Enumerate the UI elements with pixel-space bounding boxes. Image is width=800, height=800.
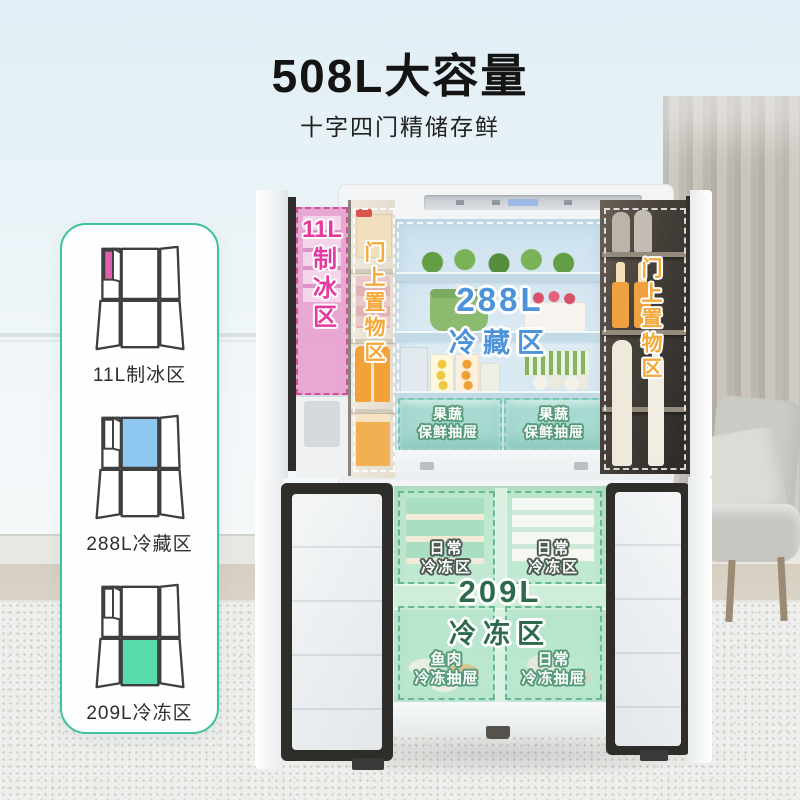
left-door-bin-label-text: 门上置物区 xyxy=(358,228,388,378)
freezer-daily-right-label: 日常 冷冻区 xyxy=(505,539,602,577)
cauliflower xyxy=(530,374,588,391)
freezer-daily-left-label: 日常 冷冻区 xyxy=(398,539,495,577)
freezer-zone-size: 209L xyxy=(394,574,606,610)
legend-item-ice: 11L制冰区 xyxy=(62,225,217,394)
crisper-left-label: 果蔬 保鲜抽屉 xyxy=(398,405,498,441)
left-door-bin-label: 门上置物区 xyxy=(351,228,395,378)
left-door-edge xyxy=(256,190,288,478)
crisper-right-label: 果蔬 保鲜抽屉 xyxy=(504,405,604,441)
freezer-zone-label: 209L 冷冻区 xyxy=(394,574,606,651)
legend-label-freezer: 209L冷冻区 xyxy=(86,698,192,725)
freezer-drawer-left-line1: 鱼肉 xyxy=(398,650,495,669)
crisper-left-label-line2: 保鲜抽屉 xyxy=(398,423,498,441)
ice-zone-label-name: 制冰区 xyxy=(305,246,340,333)
capacity-legend-card: 11L制冰区 288L冷藏区 xyxy=(60,223,219,734)
armchair-seat xyxy=(698,504,800,562)
product-detail-image: 508L大容量 十字四门精储存鲜 11L制冰区 xyxy=(0,0,800,800)
glass-shelf xyxy=(396,272,604,281)
freezer-daily-left-line1: 日常 xyxy=(398,539,495,558)
freezer-drawer-right-label: 日常 冷冻抽屉 xyxy=(505,650,602,688)
page-subtitle: 十字四门精储存鲜 xyxy=(0,108,800,142)
fresh-zone-label: 288L 冷藏区 xyxy=(394,281,606,360)
left-door-dispenser xyxy=(304,401,340,447)
right-door-edge xyxy=(690,190,712,478)
freezer-zone-name: 冷冻区 xyxy=(394,612,606,651)
legend-item-freezer: 209L冷冻区 xyxy=(62,563,217,732)
legend-label-fridge: 288L冷藏区 xyxy=(86,529,192,556)
fresh-zone-name: 冷藏区 xyxy=(394,321,606,360)
leafy-greens xyxy=(404,247,594,275)
control-panel-display-highlight xyxy=(508,199,538,206)
right-door-bin-label: 门上置物区 xyxy=(628,244,672,394)
freezer-drawer-right-line1: 日常 xyxy=(505,650,602,669)
legend-item-fridge: 288L冷藏区 xyxy=(62,394,217,563)
small-jar xyxy=(480,363,500,393)
fridge-foot xyxy=(486,726,510,739)
crisper-left-label-line1: 果蔬 xyxy=(398,405,498,423)
freezer-drawer-left-line2: 冷冻抽屉 xyxy=(398,669,495,688)
freezer-left-door-edge xyxy=(255,477,283,769)
fridge-foot xyxy=(640,750,668,761)
page-title: 508L大容量 xyxy=(0,40,800,106)
freezer-right-door-panel xyxy=(615,492,681,746)
hinge xyxy=(574,462,588,470)
fridge-foot xyxy=(352,758,384,770)
fridge-schematic-fresh-icon xyxy=(86,411,194,523)
crisper-right-label-line1: 果蔬 xyxy=(504,405,604,423)
freezer-left-door-panel xyxy=(292,494,382,750)
right-door-bin-label-text: 门上置物区 xyxy=(635,244,665,394)
ice-zone-label: 11L 制冰区 xyxy=(294,216,350,386)
freezer-drawer-left-label: 鱼肉 冷冻抽屉 xyxy=(398,650,495,688)
fresh-zone-size: 288L xyxy=(394,281,606,319)
freezer-daily-right-line1: 日常 xyxy=(505,539,602,558)
crisper-right-label-line2: 保鲜抽屉 xyxy=(504,423,604,441)
ice-zone-label-size: 11L xyxy=(302,216,342,244)
legend-label-ice: 11L制冰区 xyxy=(93,360,186,387)
hinge xyxy=(420,462,434,470)
freezer-drawer-right-line2: 冷冻抽屉 xyxy=(505,669,602,688)
freezer-right-door-edge xyxy=(688,477,712,763)
fridge-schematic-freezer-icon xyxy=(86,580,194,692)
fridge-schematic-ice-icon xyxy=(86,242,194,354)
